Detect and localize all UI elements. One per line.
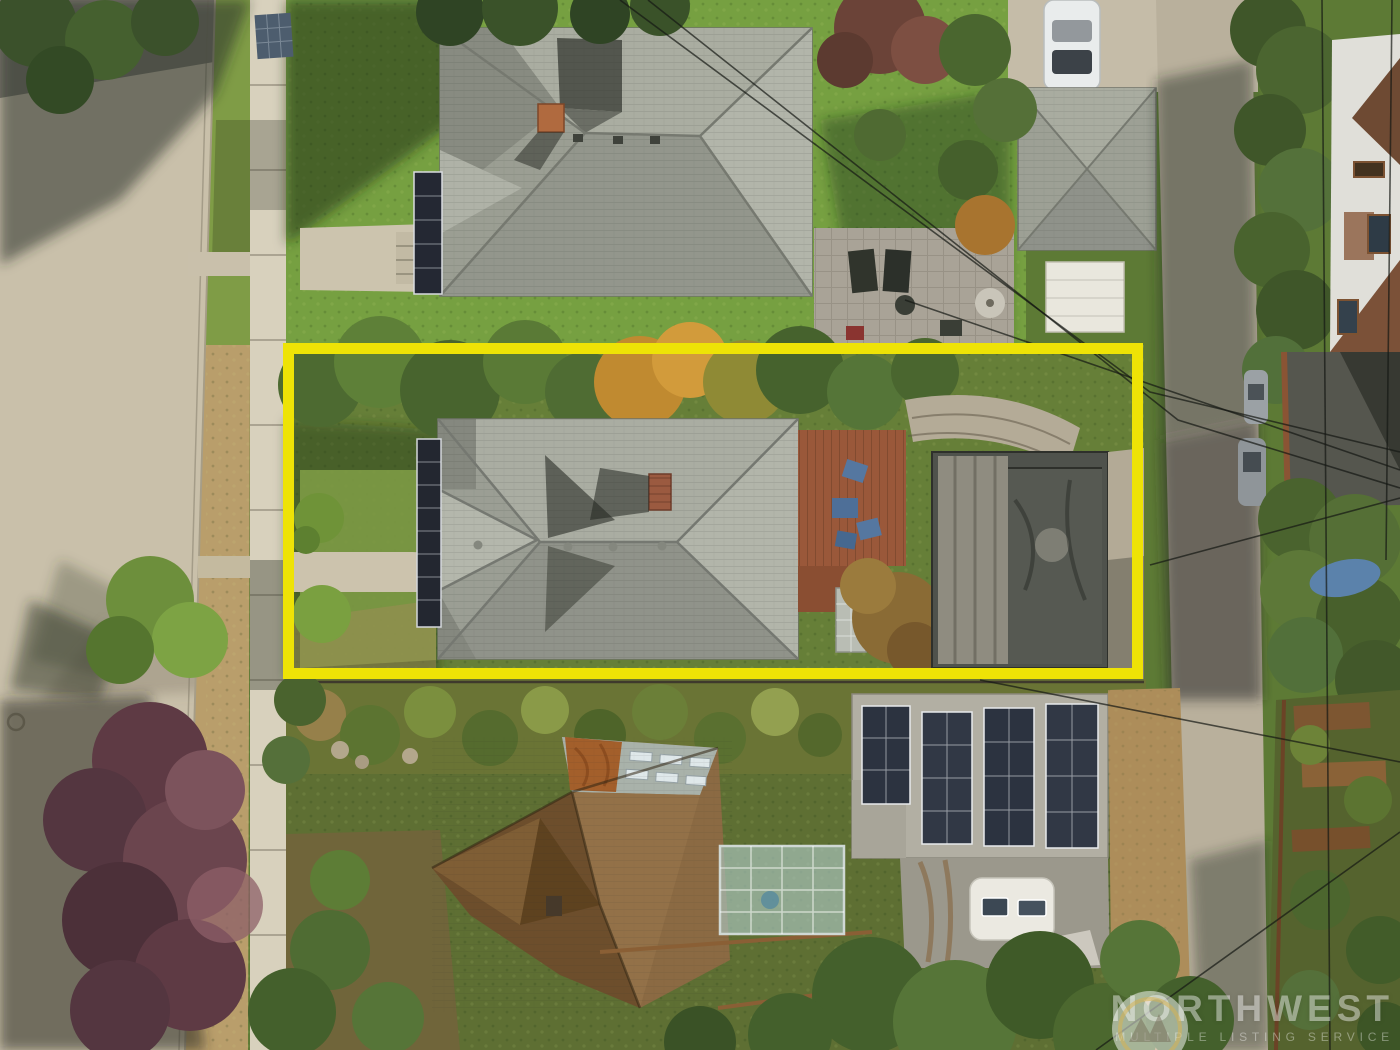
top-house-roof: [414, 28, 812, 296]
aerial-photo: NORTHWEST MULTIPLE LISTING SERVICE: [0, 0, 1400, 1050]
autumn-shrub: [955, 195, 1015, 255]
top-property: [255, 0, 1258, 345]
panel-on-lawn: [255, 13, 294, 59]
aerial-scene: [0, 0, 1400, 1050]
front-walkway: [286, 552, 438, 592]
right-garden-bottom: [1268, 690, 1400, 1050]
chimney: [538, 104, 564, 132]
lounge-chair: [883, 249, 912, 293]
chimney: [546, 896, 562, 916]
brick-chimney: [649, 474, 671, 510]
garage-roof: [1018, 88, 1156, 250]
lounge-chair: [848, 249, 878, 293]
solar-panel: [417, 439, 441, 627]
subject-property: [278, 316, 1144, 679]
driveway-apron: [188, 252, 252, 276]
solar-panel: [414, 172, 442, 294]
greenhouse: [720, 846, 844, 934]
shrub: [293, 585, 351, 643]
red-chair: [846, 326, 864, 340]
solar-building: [852, 694, 1108, 858]
walkway-apron: [198, 556, 252, 578]
white-car: [1044, 0, 1100, 90]
flat-roof-garage: [932, 452, 1108, 668]
white-canopy: [1046, 262, 1124, 332]
bottom-house-roof: [432, 737, 732, 1012]
patio-table: [895, 295, 915, 315]
right-hedge-lower: [1258, 478, 1400, 720]
subject-house-roof: [417, 419, 798, 659]
white-rv: [970, 878, 1054, 940]
deck-table: [832, 498, 858, 518]
